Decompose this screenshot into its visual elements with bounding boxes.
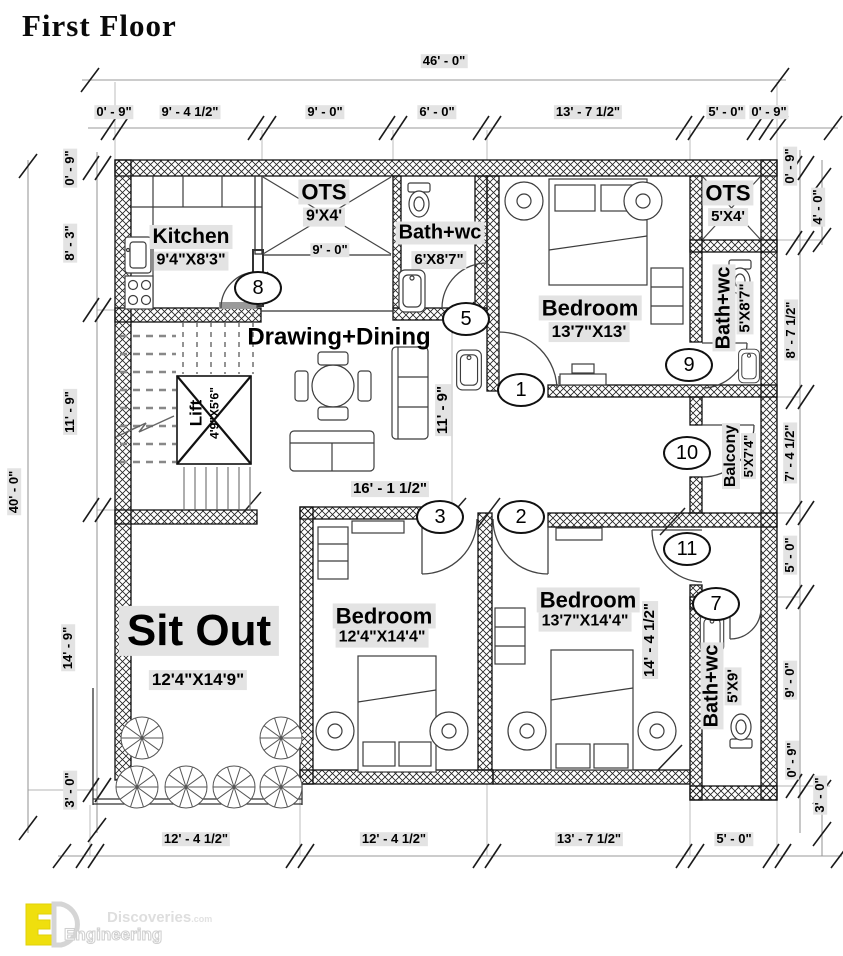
door-marker-9: 9 — [665, 348, 713, 382]
room-label-bath-1: Bath+wc — [396, 222, 485, 245]
room-label-sit-out: Sit Out — [119, 606, 279, 656]
room-size-bedroom-3: 13'7"X14'4" — [539, 613, 632, 632]
room-label-bedroom-3: Bedroom — [537, 587, 640, 612]
logo-brand-text: Discoveries.com — [107, 909, 212, 926]
dim-right-7: 3' - 0" — [813, 775, 827, 814]
plant-icons — [116, 717, 302, 808]
dim-top-1: 9' - 4 1/2" — [160, 105, 221, 119]
room-size-ots-2: 5'X4' — [708, 208, 748, 226]
room-label-ots-1: OTS — [298, 179, 349, 204]
room-size-bath-3: 5'X9' — [725, 667, 742, 705]
dim-right-4: 5' - 0" — [783, 535, 797, 574]
dim-bottom-0: 12' - 4 1/2" — [162, 832, 230, 846]
room-label-balcony: Balcony 5'X7'4" — [721, 423, 757, 489]
dim-bottom-2: 13' - 7 1/2" — [555, 832, 623, 846]
logo-brand-word: Discoveries — [107, 909, 191, 926]
bathtub-icon — [399, 270, 425, 312]
watermark-logo: Discoveries.com Engineering — [12, 898, 272, 950]
room-size-ots-1: 9'X4' — [303, 208, 345, 227]
room-label-drawing-dining: Drawing+Dining — [244, 323, 433, 350]
kitchen-stove-icon — [125, 276, 153, 309]
door-marker-11: 11 — [663, 532, 711, 566]
dim-top-2: 9' - 0" — [305, 105, 344, 119]
dim-left-0: 0' - 9" — [63, 148, 77, 187]
dim-drawing-height: 11' - 9" — [435, 384, 451, 436]
room-size-lift: 4'9"X5'6" — [208, 385, 222, 441]
room-size-bath-1: 6'X8'7" — [411, 251, 466, 269]
door-marker-5: 5 — [442, 302, 490, 336]
dim-right-2: 8' - 7 1/2" — [784, 300, 798, 361]
door-marker-10: 10 — [663, 436, 711, 470]
dresser-icon — [651, 268, 683, 324]
room-size-kitchen: 9'4"X8'3" — [153, 252, 228, 271]
toilet-icon — [408, 183, 430, 217]
room-label-bath-3-name: Bath+wc — [701, 643, 724, 730]
dim-bottom-1: 12' - 4 1/2" — [360, 832, 428, 846]
bed-icon — [551, 650, 633, 770]
room-label-bath-2: Bath+wc 5'X8'7" — [712, 265, 755, 352]
dim-top-6: 0' - 9" — [749, 105, 788, 119]
kitchen-sink-icon — [125, 237, 151, 273]
room-size-bath-2: 5'X8'7" — [737, 281, 754, 334]
dim-ots-width: 9' - 0" — [310, 243, 349, 257]
room-size-bedroom-1: 13'7"X13' — [549, 322, 630, 342]
floorplan-drawing — [0, 0, 843, 956]
room-size-balcony: 5'X7'4" — [741, 433, 756, 480]
room-label-bedroom-2: Bedroom — [333, 603, 436, 628]
dim-top-4: 13' - 7 1/2" — [554, 105, 622, 119]
dim-bedroom3-height: 14' - 4 1/2" — [642, 601, 658, 679]
bench-icon — [560, 364, 606, 385]
dim-left-overall: 40' - 0" — [7, 469, 21, 516]
dim-top-5: 5' - 0" — [706, 105, 745, 119]
dim-top-overall: 46' - 0" — [421, 54, 468, 68]
door-marker-7: 7 — [692, 587, 740, 621]
dim-left-1: 8' - 3" — [63, 223, 77, 262]
dim-right-6: 0' - 9" — [785, 740, 799, 779]
wardrobe-icon — [318, 521, 404, 579]
dim-left-2: 11' - 9" — [63, 389, 77, 435]
door-marker-8: 8 — [234, 271, 282, 305]
room-size-sit-out: 12'4"X14'9" — [149, 670, 247, 690]
room-label-lift: Lift 4'9"X5'6" — [186, 385, 223, 441]
door-marker-1: 1 — [497, 373, 545, 407]
room-label-bath-3: Bath+wc 5'X9' — [700, 643, 743, 730]
dim-top-3: 6' - 0" — [417, 105, 456, 119]
wash-basin-icon — [739, 349, 760, 383]
dim-drawing-width: 16' - 1 1/2" — [351, 481, 429, 497]
door-marker-3: 3 — [416, 500, 464, 534]
room-label-bath-2-name: Bath+wc — [713, 265, 736, 352]
logo-brand2-text: Engineering — [64, 925, 162, 945]
room-label-lift-name: Lift — [187, 398, 207, 428]
dim-left-4: 3' - 0" — [63, 770, 77, 809]
dim-right-5: 9' - 0" — [783, 660, 797, 699]
room-label-balcony-name: Balcony — [722, 423, 740, 489]
floor-plan-page: First Floor — [0, 0, 843, 956]
door-marker-2: 2 — [497, 500, 545, 534]
dim-right-0: 0' - 9" — [783, 146, 797, 185]
sofa-icon — [290, 347, 428, 471]
dim-right-1: 4' - 0" — [811, 187, 825, 226]
room-label-kitchen: Kitchen — [149, 225, 232, 249]
logo-brand-suffix: .com — [191, 914, 212, 924]
room-label-ots-2: OTS — [702, 180, 753, 205]
bed-icon — [358, 656, 436, 772]
dim-left-3: 14' - 9" — [61, 625, 75, 672]
dining-table-icon — [295, 352, 371, 420]
dim-top-0: 0' - 9" — [94, 105, 133, 119]
room-label-bedroom-1: Bedroom — [539, 295, 642, 320]
room-size-bedroom-2: 12'4"X14'4" — [336, 629, 429, 648]
dim-bottom-3: 5' - 0" — [714, 832, 753, 846]
dim-right-3: 7' - 4 1/2" — [783, 423, 797, 484]
wash-basin-icon — [457, 350, 482, 390]
